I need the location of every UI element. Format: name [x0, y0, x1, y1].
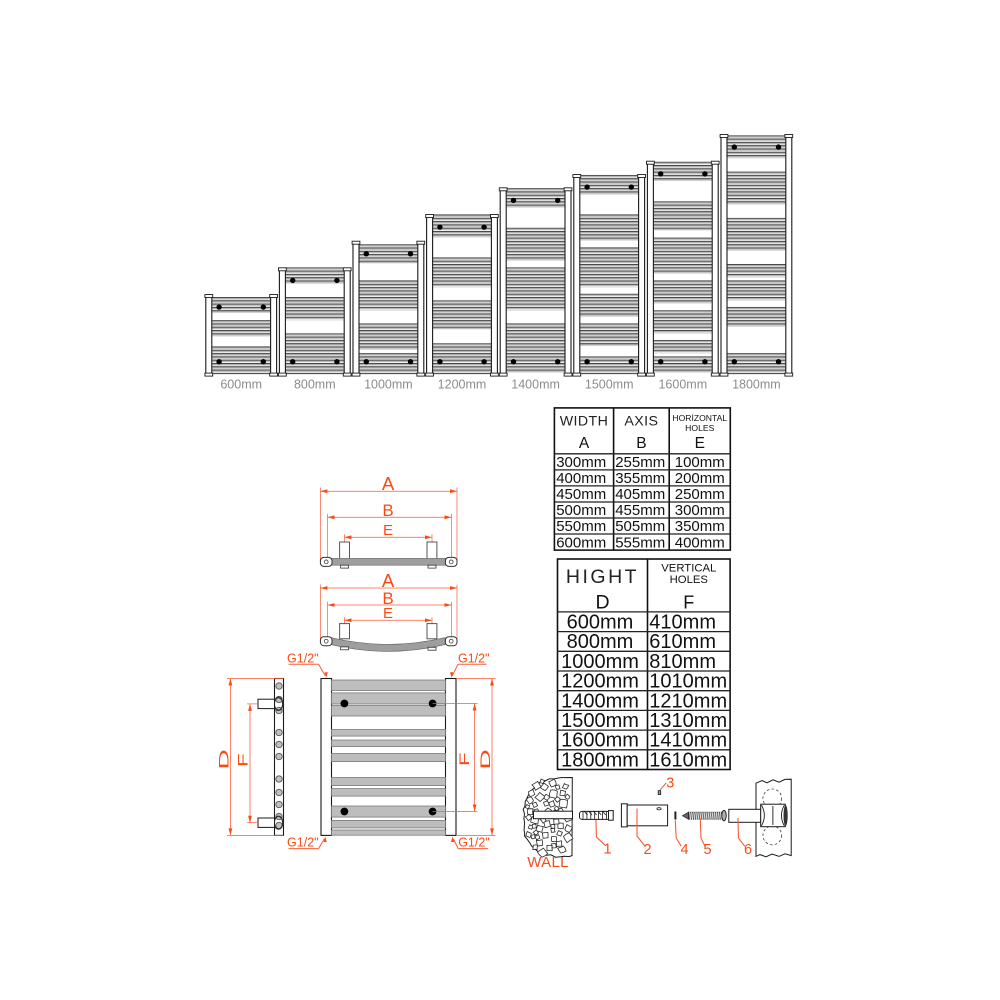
svg-text:1400mm: 1400mm [561, 690, 639, 712]
svg-text:555mm: 555mm [615, 534, 665, 551]
svg-text:G1/2": G1/2" [287, 835, 319, 849]
svg-text:255mm: 255mm [615, 454, 665, 471]
svg-text:1410mm: 1410mm [649, 730, 727, 752]
svg-text:355mm: 355mm [615, 470, 665, 487]
svg-text:G1/2": G1/2" [458, 835, 490, 849]
svg-text:2: 2 [643, 842, 651, 858]
svg-text:HIGHT: HIGHT [566, 566, 639, 588]
svg-text:1200mm: 1200mm [438, 377, 487, 391]
svg-text:100mm: 100mm [675, 454, 725, 471]
svg-text:5: 5 [703, 842, 711, 858]
svg-text:250mm: 250mm [675, 486, 725, 503]
svg-text:800mm: 800mm [294, 377, 336, 391]
svg-text:810mm: 810mm [649, 651, 716, 673]
svg-text:1800mm: 1800mm [732, 377, 781, 391]
svg-text:1500mm: 1500mm [561, 710, 639, 732]
svg-text:1500mm: 1500mm [585, 377, 634, 391]
svg-text:410mm: 410mm [649, 612, 716, 634]
svg-text:610mm: 610mm [649, 631, 716, 653]
svg-text:1: 1 [603, 842, 611, 858]
svg-text:1400mm: 1400mm [511, 377, 560, 391]
svg-text:300mm: 300mm [556, 454, 606, 471]
svg-text:F: F [683, 593, 694, 613]
svg-text:A: A [382, 570, 395, 591]
svg-text:WALL: WALL [527, 854, 569, 871]
svg-text:4: 4 [680, 842, 688, 858]
svg-text:600mm: 600mm [220, 377, 262, 391]
svg-text:1000mm: 1000mm [561, 651, 639, 673]
svg-text:350mm: 350mm [675, 518, 725, 535]
svg-text:300mm: 300mm [675, 502, 725, 519]
svg-text:405mm: 405mm [615, 486, 665, 503]
svg-text:500mm: 500mm [556, 502, 606, 519]
svg-text:E: E [383, 605, 393, 622]
svg-text:HOLES: HOLES [685, 423, 714, 433]
svg-text:400mm: 400mm [675, 534, 725, 551]
svg-text:1600mm: 1600mm [561, 730, 639, 752]
svg-text:1800mm: 1800mm [561, 749, 639, 771]
svg-text:B: B [636, 435, 646, 452]
svg-text:F: F [456, 752, 472, 766]
svg-text:450mm: 450mm [556, 486, 606, 503]
svg-text:600mm: 600mm [567, 612, 634, 634]
svg-text:D: D [595, 592, 609, 614]
svg-text:400mm: 400mm [556, 470, 606, 487]
svg-text:G1/2": G1/2" [287, 651, 319, 665]
svg-text:600mm: 600mm [556, 534, 606, 551]
svg-text:A: A [579, 435, 590, 452]
svg-text:1600mm: 1600mm [658, 377, 707, 391]
svg-text:505mm: 505mm [615, 518, 665, 535]
svg-text:1000mm: 1000mm [364, 377, 413, 391]
svg-text:D: D [216, 749, 232, 769]
svg-text:1310mm: 1310mm [649, 710, 727, 732]
svg-text:800mm: 800mm [567, 631, 634, 653]
svg-text:G1/2": G1/2" [458, 651, 490, 665]
svg-text:1610mm: 1610mm [649, 749, 727, 771]
svg-text:VERTICAL: VERTICAL [661, 563, 716, 575]
svg-text:HOLES: HOLES [670, 574, 709, 586]
svg-text:E: E [695, 435, 705, 452]
svg-text:1010mm: 1010mm [649, 671, 727, 693]
svg-text:F: F [235, 753, 251, 767]
svg-text:550mm: 550mm [556, 518, 606, 535]
svg-text:D: D [477, 749, 493, 769]
svg-text:B: B [382, 501, 393, 520]
svg-text:1210mm: 1210mm [649, 690, 727, 712]
svg-text:200mm: 200mm [675, 470, 725, 487]
svg-text:WIDTH: WIDTH [560, 414, 609, 430]
svg-text:3: 3 [666, 776, 674, 792]
svg-text:455mm: 455mm [615, 502, 665, 519]
svg-text:6: 6 [744, 842, 752, 858]
svg-text:AXIS: AXIS [624, 414, 658, 430]
svg-text:1200mm: 1200mm [561, 671, 639, 693]
svg-text:E: E [383, 522, 393, 539]
svg-text:HORİZONTAL: HORİZONTAL [672, 413, 727, 423]
svg-text:A: A [382, 473, 395, 494]
